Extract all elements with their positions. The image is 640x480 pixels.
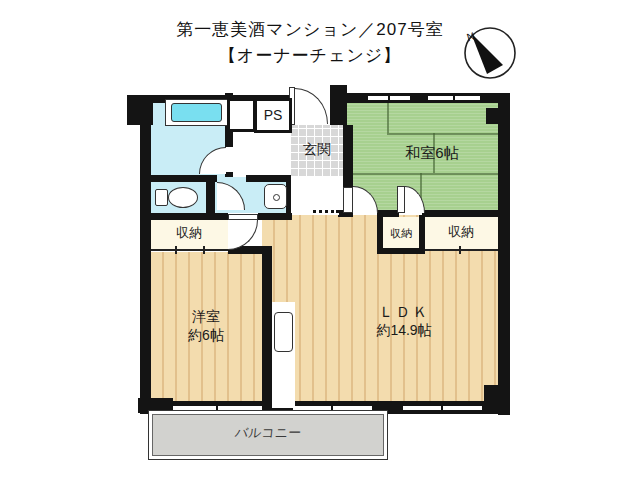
japanese-closet-door-leaf — [397, 186, 405, 213]
sink-drain — [273, 194, 280, 201]
japanese-room-door-leaf — [343, 187, 353, 213]
toilet-bowl-icon — [168, 187, 198, 208]
wall — [343, 125, 353, 187]
tatami-line — [345, 173, 498, 175]
door-tick — [459, 246, 461, 254]
closet-left-label: 収納 — [176, 224, 202, 242]
pipe-space-label: PS — [264, 107, 283, 123]
balcony-label: バルコニー — [234, 424, 302, 442]
bathtub-water — [171, 103, 222, 122]
tatami-line — [387, 103, 389, 133]
toilet-icon — [155, 189, 168, 206]
pocket-door-leaf — [274, 312, 293, 352]
entrance-step-dots — [312, 208, 339, 215]
step-dot — [319, 210, 322, 213]
wall — [143, 175, 217, 182]
closet-small-label: 収納 — [390, 226, 412, 241]
compass-icon: N — [462, 25, 518, 81]
wall — [225, 172, 233, 177]
wall — [498, 103, 510, 415]
door-tick — [203, 246, 205, 254]
ldk-label-line2: 約14.9帖 — [376, 322, 431, 340]
wall — [422, 210, 510, 217]
sliding-door — [151, 249, 228, 251]
sliding-door — [425, 249, 498, 251]
floor-plan-page: 第一恵美酒マンション／207号室 【オーナーチェンジ】 N — [0, 0, 640, 480]
wall — [258, 213, 292, 220]
window — [368, 94, 410, 102]
tatami-line — [387, 133, 498, 135]
step-dot — [336, 210, 339, 213]
window — [403, 404, 482, 412]
step-dot — [331, 210, 334, 213]
japanese-room-label: 和室6帖 — [405, 144, 458, 163]
western-room-label-line1: 洋室 — [192, 308, 220, 326]
wall — [262, 249, 272, 404]
entrance-label: 玄関 — [303, 141, 331, 159]
door-tick — [175, 246, 177, 254]
window — [428, 94, 480, 102]
step-dot — [325, 210, 328, 213]
western-room-label-line2: 約6帖 — [188, 327, 224, 345]
wall — [377, 248, 425, 254]
wall — [140, 213, 228, 220]
wall — [140, 118, 151, 406]
wall — [206, 182, 215, 213]
wall — [330, 85, 347, 125]
closet-right-label: 収納 — [448, 223, 474, 241]
wall — [486, 108, 500, 124]
compass-north-label: N — [465, 29, 476, 43]
entrance-door-arc — [295, 88, 328, 124]
window-tick — [441, 406, 443, 410]
window-tick — [453, 96, 455, 100]
utility-box — [227, 98, 256, 132]
window-tick — [388, 96, 390, 100]
ldk-label-line1: ＬＤＫ — [379, 303, 430, 322]
step-dot — [313, 210, 316, 213]
wall — [246, 175, 291, 182]
